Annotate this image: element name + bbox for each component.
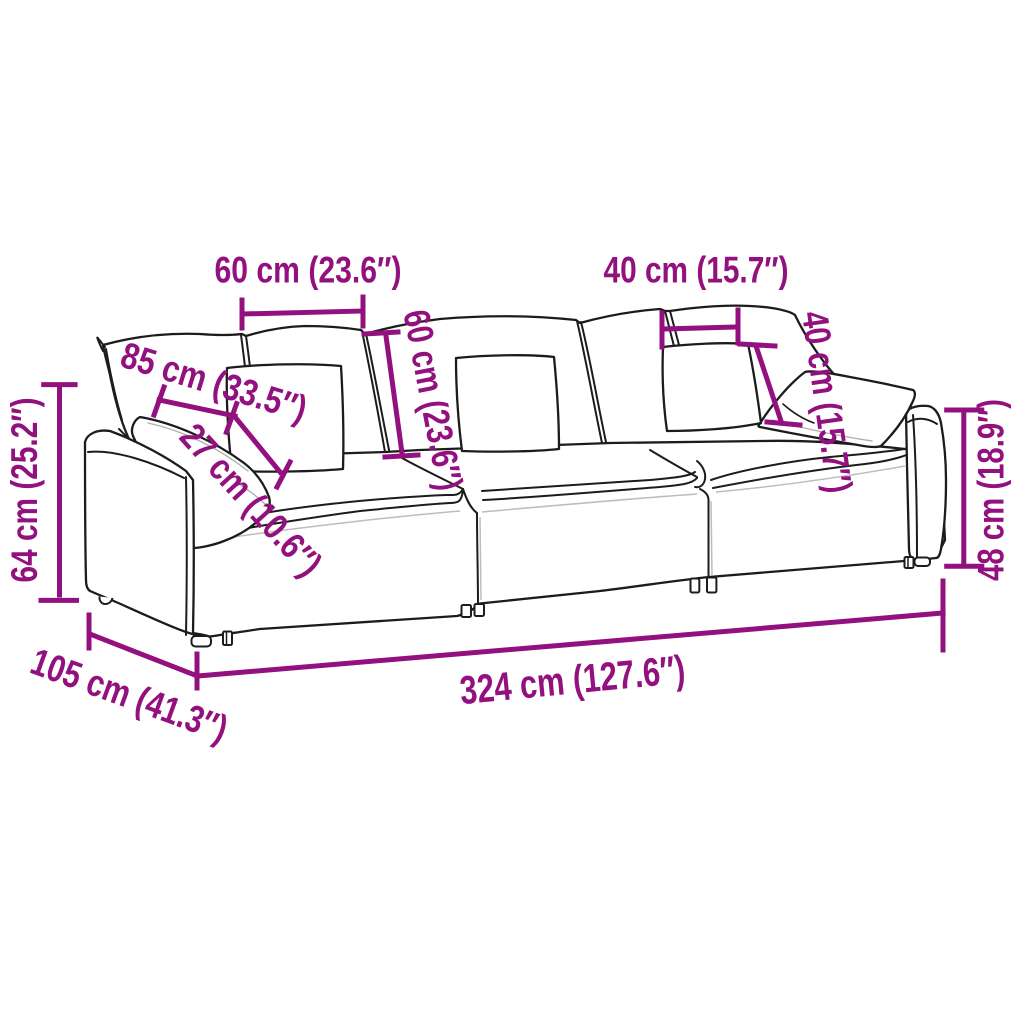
svg-text:64 cm (25.2″): 64 cm (25.2″) <box>4 398 45 583</box>
svg-text:48 cm (18.9″): 48 cm (18.9″) <box>971 399 1012 581</box>
svg-text:40 cm (15.7″): 40 cm (15.7″) <box>604 250 789 291</box>
svg-text:60 cm (23.6″): 60 cm (23.6″) <box>215 250 402 291</box>
